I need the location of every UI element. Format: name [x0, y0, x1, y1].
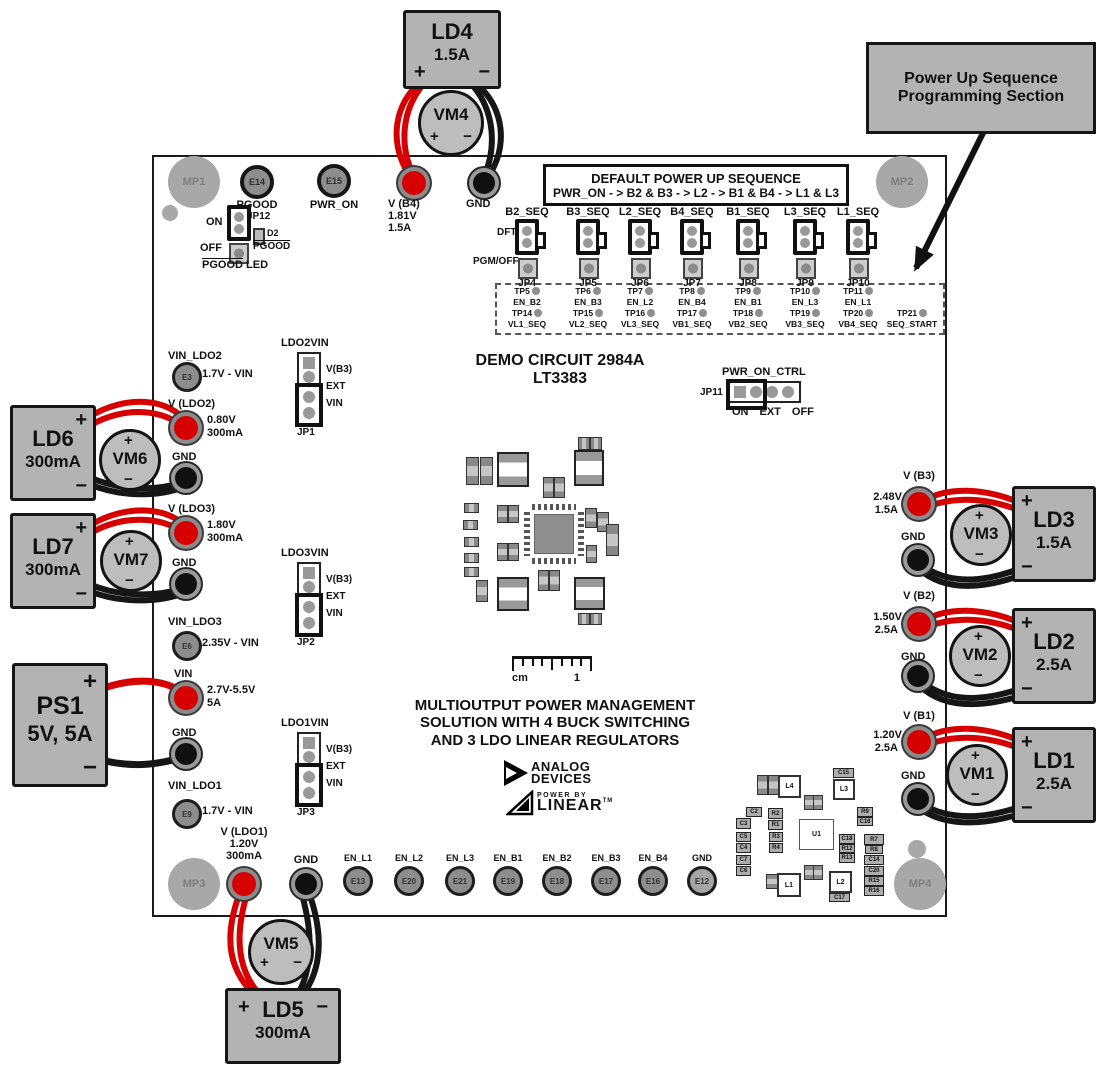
plus-terminal: +: [414, 62, 426, 82]
tp-dot: [755, 309, 763, 317]
adi-logo: ANALOGDEVICES POWER BY LINEARTM: [504, 760, 613, 816]
gnd-pad: [175, 743, 197, 765]
tp-en-b2: TP5 EN_B2: [495, 286, 559, 307]
vb2-value: 1.50V: [866, 611, 902, 623]
load-ld6: LD6 300mA + −: [10, 405, 96, 501]
plus-terminal: +: [430, 129, 439, 144]
voltmeter-vm1: + VM1 −: [946, 744, 1008, 806]
load-ld3: LD3 1.5A + −: [1012, 486, 1096, 582]
minus-terminal: −: [478, 62, 490, 82]
plus-terminal: +: [975, 508, 984, 523]
load-ld7: LD7 300mA + −: [10, 513, 96, 609]
minus-terminal: −: [971, 787, 980, 802]
fiducial-dot: [908, 840, 926, 858]
plus-terminal: +: [125, 534, 134, 549]
jp12-label: JP12: [247, 211, 270, 222]
tp-vl1-seq: TP14 VL1_SEQ: [495, 308, 559, 329]
jp11-shunt: [726, 379, 767, 410]
tp-dot: [865, 287, 873, 295]
power-up-sequence-callout: Power Up Sequence Programming Section: [866, 42, 1096, 134]
minus-terminal: −: [1021, 679, 1033, 699]
wires-layer: [0, 0, 1100, 1068]
tp-dot: [699, 309, 707, 317]
gnd-pad: [175, 467, 197, 489]
gnd-label: GND: [172, 557, 196, 569]
tp-dot: [645, 287, 653, 295]
tp-dot: [647, 309, 655, 317]
minus-terminal: −: [975, 547, 984, 562]
vldo1-pad: [232, 872, 256, 896]
jp11-jumper: [727, 381, 801, 403]
gnd-pad: [907, 788, 929, 810]
tp-seq-start: TP21 SEQ_START: [880, 308, 944, 329]
vin-ldo2-note: 1.7V - VIN: [202, 368, 253, 380]
mount-mp4: MP4: [894, 858, 946, 910]
jp11-label: JP11: [700, 387, 723, 398]
voltmeter-vm4: VM4 + −: [418, 90, 484, 156]
tp-dot: [697, 287, 705, 295]
jp11-off-label: OFF: [792, 406, 814, 418]
tp-dot: [919, 309, 927, 317]
load-ld1: LD1 2.5A + −: [1012, 727, 1096, 823]
gnd-e12-pad-group: GND E12: [672, 853, 732, 896]
plus-terminal: +: [1021, 613, 1033, 633]
ldo3vin-jumper: LDO3VIN V(B3) EXT VIN JP2: [281, 547, 329, 648]
vb3-current: 1.5A: [868, 504, 898, 516]
load-ld5: LD5 300mA + −: [225, 988, 341, 1064]
vb1-value: 1.20V: [866, 729, 902, 741]
gnd-label: GND: [901, 531, 925, 543]
vldo3-label: V (LDO3): [168, 503, 215, 515]
vin-ldo2-label: VIN_LDO2: [168, 350, 222, 362]
tp-dot: [532, 287, 540, 295]
mount-mp3: MP3: [168, 858, 220, 910]
plus-terminal: +: [1021, 491, 1033, 511]
vin-ldo3-note: 2.35V - VIN: [202, 637, 259, 649]
plus-terminal: +: [974, 629, 983, 644]
mount-mp2: MP2: [876, 156, 928, 208]
gnd-pad: [907, 665, 929, 687]
vb3-pad: [907, 492, 931, 516]
d2-pgood-label: PGOOD: [253, 241, 290, 252]
power-supply-ps1: PS1 5V, 5A + −: [12, 663, 108, 787]
d2-label: D2: [267, 228, 279, 238]
minus-terminal: −: [1021, 557, 1033, 577]
vin-ldo1-note: 1.7V - VIN: [202, 805, 253, 817]
plus-terminal: +: [75, 410, 87, 430]
voltmeter-vm6: + VM6 −: [99, 429, 161, 491]
board-title: DEMO CIRCUIT 2984A LT3383: [450, 352, 670, 388]
plus-terminal: +: [75, 518, 87, 538]
gnd-label: GND: [280, 854, 332, 866]
default-sequence-box: DEFAULT POWER UP SEQUENCE PWR_ON - > B2 …: [543, 164, 849, 206]
vin-pad: [174, 686, 198, 710]
vldo3-pad: [174, 521, 198, 545]
top-gnd-label: GND: [466, 198, 490, 210]
gnd-pad: [175, 573, 197, 595]
minus-terminal: −: [463, 129, 472, 144]
minus-terminal: −: [974, 668, 983, 683]
tp-dot: [595, 309, 603, 317]
minus-terminal: −: [124, 472, 133, 487]
gnd-label: GND: [901, 651, 925, 663]
callout-arrow: [916, 129, 985, 268]
ldo1vin-jumper: LDO1VIN V(B3) EXT VIN JP3: [281, 717, 329, 818]
gnd-label: GND: [172, 727, 196, 739]
ruler-unit: cm: [512, 672, 528, 684]
power-by-linear-logo: POWER BY LINEARTM: [506, 790, 613, 816]
ruler: cm1: [512, 656, 592, 684]
tp-dot: [593, 287, 601, 295]
voltmeter-vm5: VM5 + −: [248, 919, 314, 985]
vb2-pad: [907, 612, 931, 636]
e6-pad: E6: [172, 631, 202, 661]
plus-terminal: +: [971, 748, 980, 763]
vin-ldo3-label: VIN_LDO3: [168, 616, 222, 628]
gnd-label: GND: [901, 770, 925, 782]
vb3-label: V (B3): [889, 470, 949, 482]
vin-current: 5A: [207, 697, 221, 709]
tp-dot: [812, 287, 820, 295]
minus-terminal: −: [1021, 798, 1033, 818]
tp-vb2-seq: TP18 VB2_SEQ: [716, 308, 780, 329]
plus-terminal: +: [260, 955, 269, 970]
vldo2-value: 0.80V: [207, 414, 236, 426]
pgood-led-label: PGOOD LED: [202, 259, 268, 271]
top-gnd-pad: [473, 172, 495, 194]
vin-label: VIN: [174, 668, 192, 680]
tp-en-b4: TP8 EN_B4: [660, 286, 724, 307]
minus-terminal: −: [83, 756, 97, 780]
tp-en-l1: TP11 EN_L1: [826, 286, 890, 307]
e14-pad: E14: [240, 165, 274, 199]
plus-terminal: +: [1021, 732, 1033, 752]
tp-dot: [534, 309, 542, 317]
e15-pad: E15: [317, 164, 351, 198]
vldo2-pad: [174, 416, 198, 440]
voltmeter-vm2: + VM2 −: [949, 625, 1011, 687]
pwr-on-ctrl: PWR_ON_CTRL JP11 ON EXT OFF: [700, 366, 814, 418]
tp-en-b1: TP9 EN_B1: [716, 286, 780, 307]
gnd-pad: [907, 549, 929, 571]
vb1-label: V (B1): [889, 710, 949, 722]
tp-vb1-seq: TP17 VB1_SEQ: [660, 308, 724, 329]
fiducial-dot: [162, 205, 178, 221]
vb1-pad: [907, 730, 931, 754]
seq-jumper-b2: B2_SEQ JP4: [495, 206, 559, 289]
linear-triangle-icon: [506, 790, 534, 816]
voltmeter-vm7: + VM7 −: [100, 530, 162, 592]
e15-label: PWR_ON: [305, 199, 363, 211]
plus-terminal: +: [83, 670, 97, 694]
vb3-value: 2.48V: [866, 491, 902, 503]
vldo3-current: 300mA: [207, 532, 243, 544]
seq-jumper-b4: B4_SEQ JP7: [660, 206, 724, 289]
vb4-label: V (B4) 1.81V 1.5A: [388, 198, 420, 234]
load-ld2: LD2 2.5A + −: [1012, 608, 1096, 704]
gnd-label: GND: [172, 451, 196, 463]
minus-terminal: −: [293, 955, 302, 970]
vb4-pad: [402, 171, 426, 195]
adi-triangle-icon: [504, 760, 528, 786]
tp-dot: [812, 309, 820, 317]
ldo2vin-jumper: LDO2VIN V(B3) EXT VIN JP1: [281, 337, 329, 438]
vb2-current: 2.5A: [868, 624, 898, 636]
demo-board-diagram: MP1 MP2 MP3 MP4 E14 PGOOD E15 PWR_ON ON …: [0, 0, 1100, 1068]
minus-terminal: −: [75, 584, 87, 604]
e3-pad: E3: [172, 362, 202, 392]
vldo2-label: V (LDO2): [168, 398, 215, 410]
ruler-mark: 1: [574, 672, 580, 684]
load-ld4: LD4 1.5A + −: [403, 10, 501, 89]
vldo3-value: 1.80V: [207, 519, 236, 531]
gnd-pad: [295, 873, 317, 895]
minus-terminal: −: [75, 476, 87, 496]
jp12-on-label: ON: [206, 216, 223, 228]
mount-mp1: MP1: [168, 156, 220, 208]
e9-pad: E9: [172, 799, 202, 829]
voltmeter-vm3: + VM3 −: [950, 504, 1012, 566]
seq-jumper-l1: L1_SEQ JP10: [826, 206, 890, 289]
vin-value: 2.7V-5.5V: [207, 684, 255, 696]
seq-jumper-b1: B1_SEQ JP8: [716, 206, 780, 289]
vldo1-label: V (LDO1) 1.20V 300mA: [194, 826, 294, 862]
minus-terminal: −: [125, 573, 134, 588]
board-description: MULTIOUTPUT POWER MANAGEMENT SOLUTION WI…: [385, 697, 725, 749]
vldo2-current: 300mA: [207, 427, 243, 439]
minus-terminal: −: [316, 997, 328, 1017]
vb1-current: 2.5A: [868, 742, 898, 754]
vin-ldo1-label: VIN_LDO1: [168, 780, 222, 792]
jp12-off-label: OFF: [200, 242, 222, 254]
vb2-label: V (B2): [889, 590, 949, 602]
tp-dot: [865, 309, 873, 317]
plus-terminal: +: [124, 433, 133, 448]
tp-dot: [753, 287, 761, 295]
plus-terminal: +: [238, 997, 250, 1017]
